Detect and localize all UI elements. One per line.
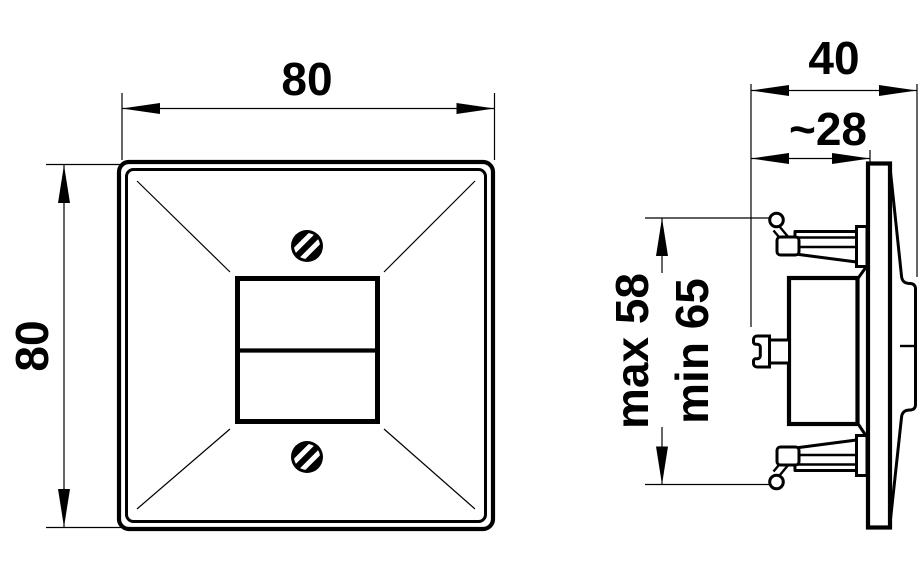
fixing-screw-shank	[770, 340, 790, 363]
bottom-screw	[291, 441, 323, 473]
dim-arrow-right	[457, 103, 495, 114]
technical-drawing-canvas: 80 80 40	[0, 0, 923, 568]
depth-dim-label: 40	[808, 32, 859, 84]
width-dim-label: 80	[281, 53, 332, 105]
height-dim-label: 80	[6, 320, 58, 371]
dim-arrow-down	[656, 447, 668, 485]
recess-dim-label: ~28	[789, 103, 867, 155]
claw-span-label-min: min 65	[666, 278, 718, 424]
top-screw	[291, 230, 323, 262]
dim-arrow-right	[879, 85, 917, 96]
support-frame-body	[789, 278, 858, 424]
recess-dimension: ~28	[751, 103, 870, 164]
dim-arrow-up	[656, 218, 668, 256]
dim-arrow-left	[122, 103, 160, 114]
height-dimension: 80	[6, 165, 121, 528]
claw-span-label-max: max 58	[606, 273, 658, 429]
faceplate-section	[868, 164, 890, 528]
side-view: 40 ~28 max 58 min 65	[606, 32, 917, 528]
front-view: 80 80	[6, 53, 495, 529]
lower-expansion-claw	[770, 436, 867, 489]
dim-arrow-left	[751, 153, 789, 164]
claw-span-dimension: max 58 min 65	[606, 218, 770, 485]
width-dimension: 80	[122, 53, 495, 160]
fixing-screw-head	[754, 336, 770, 367]
fixing-screw	[754, 336, 790, 367]
upper-expansion-claw	[770, 213, 867, 266]
dim-arrow-down	[58, 489, 70, 527]
dim-arrow-left	[751, 85, 789, 96]
dimension-drawing: 80 80 40	[0, 0, 923, 568]
dim-arrow-up	[58, 165, 70, 203]
